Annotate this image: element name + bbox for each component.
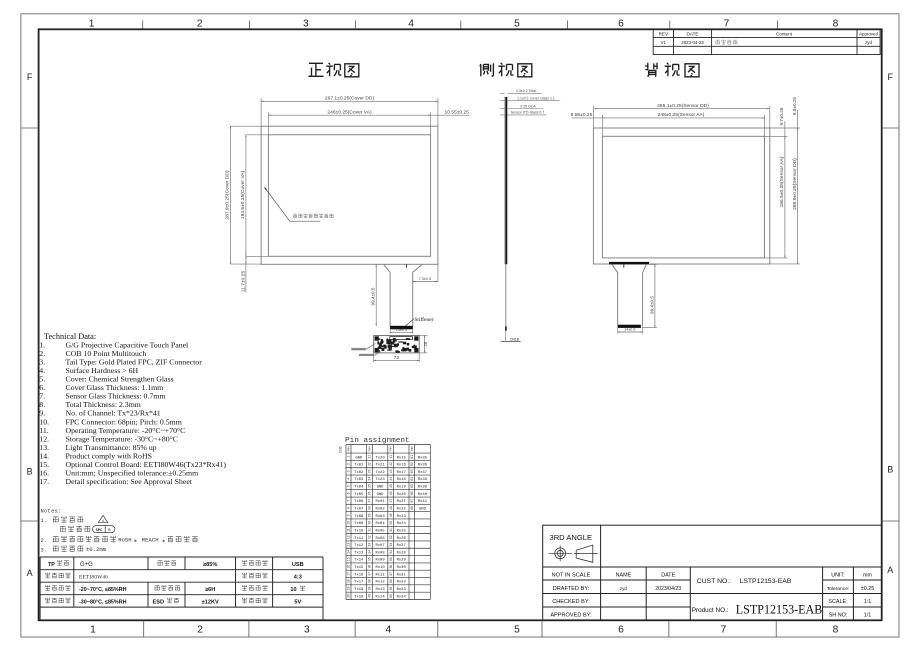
svg-text:4: 4 [347,478,351,480]
svg-text:Tx03: Tx03 [354,478,364,482]
svg-text:3: 3 [304,625,310,636]
svg-text:Pin assignment: Pin assignment [345,437,410,445]
svg-text:RoSH: RoSH [118,537,131,544]
svg-text:A: A [27,568,33,578]
svg-text:NOT IN SCALE: NOT IN SCALE [552,572,591,578]
svg-text:32: 32 [368,535,372,539]
svg-text:1: 1 [89,19,95,30]
svg-text:68: 68 [410,506,414,510]
svg-text:7: 7 [724,19,730,30]
svg-text:23: 23 [368,469,372,473]
svg-text:Rx32: Rx32 [397,581,407,585]
svg-text:PIN: PIN [389,446,393,451]
svg-text:-30~80°C, ≤85%RH: -30~80°C, ≤85%RH [79,600,127,606]
svg-text:61: 61 [410,455,414,459]
svg-text:Tx04: Tx04 [354,486,364,490]
svg-text:SCALE:: SCALE: [828,599,847,605]
svg-text:Rx01: Rx01 [375,500,385,504]
svg-text:8: 8 [347,507,351,509]
svg-text:Stiffener: Stiffener [414,316,434,323]
svg-text:Rx17: Rx17 [397,471,406,475]
svg-text:54: 54 [389,550,393,554]
svg-text:5V: 5V [294,599,301,605]
svg-text:45: 45 [389,484,393,488]
svg-text:LSTP12153-EAB: LSTP12153-EAB [740,578,792,585]
svg-text:26: 26 [368,491,372,495]
svg-text:7: 7 [347,500,351,502]
svg-text:Tx09: Tx09 [354,522,364,526]
svg-text:≥6H: ≥6H [205,587,215,593]
svg-text:31: 31 [368,528,372,532]
svg-text:Rx21: Rx21 [397,500,407,504]
svg-text:36: 36 [368,565,372,569]
svg-text:Tx22: Tx22 [375,471,385,475]
svg-text:GND: GND [355,456,363,460]
svg-text:GND: GND [377,493,385,497]
svg-text:F: F [888,72,894,82]
svg-text:Tx10: Tx10 [354,529,364,533]
svg-text:Tx06: Tx06 [354,500,364,504]
svg-text:11: 11 [347,528,351,532]
svg-text:14: 14 [347,550,351,554]
svg-text:3.: 3. [41,547,47,553]
svg-text:184.5±0.25(Cover VA): 184.5±0.25(Cover VA) [240,170,246,219]
svg-text:Tx19: Tx19 [354,595,364,599]
svg-text:V1: V1 [661,40,667,45]
svg-text:5: 5 [514,625,520,636]
svg-text:1:1: 1:1 [864,599,872,605]
svg-text:18: 18 [347,579,351,583]
svg-text:14±0.5: 14±0.5 [396,328,407,332]
svg-text:B: B [887,465,893,475]
svg-text:zyd: zyd [620,586,628,591]
svg-text:Rx07: Rx07 [375,544,384,548]
svg-text:Rx39: Rx39 [418,486,428,490]
svg-text:47: 47 [389,499,393,503]
svg-text:9.7±0.25: 9.7±0.25 [779,107,784,125]
svg-text:GND: GND [377,486,385,490]
svg-text:PIN: PIN [347,446,351,451]
svg-text:19: 19 [347,587,351,591]
svg-text:Tx23: Tx23 [375,478,385,482]
svg-text:±12KV: ±12KV [202,599,219,605]
svg-text:Rx09: Rx09 [375,559,385,563]
svg-text:Tx02: Tx02 [354,471,364,475]
svg-text:Rx04: Rx04 [375,522,385,526]
svg-text:60: 60 [389,594,393,598]
svg-text:52: 52 [389,535,393,539]
svg-text:Tx12: Tx12 [354,544,364,548]
svg-text:59: 59 [389,587,393,591]
svg-text:49: 49 [389,513,393,517]
svg-text:Rx19: Rx19 [397,486,407,490]
svg-text:9: 9 [347,514,351,516]
svg-text:1: 1 [90,625,96,636]
svg-text:Rx34: Rx34 [397,595,407,599]
svg-text:33: 33 [368,543,372,547]
svg-text:CN1: CN1 [340,445,344,453]
svg-text:REACH: REACH [142,537,159,544]
svg-text:Content: Content [776,32,793,37]
svg-text:PIN: PIN [410,446,414,451]
svg-text:20: 20 [347,594,351,598]
svg-text:Approved: Approved [859,32,878,37]
svg-text:Rx14: Rx14 [375,595,385,599]
svg-text:Rx05: Rx05 [375,529,385,533]
svg-text:62: 62 [410,462,414,466]
svg-text:CUST NO.:: CUST NO.: [697,578,731,585]
svg-text:NAME: NAME [616,572,632,578]
svg-text:41: 41 [389,455,393,459]
svg-text:±0.25: ±0.25 [861,586,874,592]
svg-text:Sensor ITO Glass 0.7: Sensor ITO Glass 0.7 [511,111,545,115]
svg-text:35: 35 [368,557,372,561]
svg-text:265.1±0.25(Sensor DD): 265.1±0.25(Sensor DD) [657,103,709,109]
svg-text:Rx40: Rx40 [418,493,428,497]
svg-text:34: 34 [368,550,372,554]
svg-text:Rx36: Rx36 [418,464,428,468]
svg-text:6: 6 [618,625,624,636]
svg-text:Tx21: Tx21 [375,464,385,468]
svg-text:DATE: DATE [661,572,675,578]
svg-text:CN1B: CN1B [510,338,520,342]
svg-text:46: 46 [389,491,393,495]
svg-text:17: 17 [347,572,351,576]
svg-text:Rx26: Rx26 [397,537,407,541]
svg-text:10: 10 [347,521,351,525]
svg-text:44: 44 [389,477,393,481]
svg-text:Rx13: Rx13 [375,588,385,592]
svg-text:Rx35: Rx35 [418,456,428,460]
svg-text:G+G: G+G [80,562,93,568]
svg-text:99.4±0.5: 99.4±0.5 [371,287,376,305]
svg-text:Rx28: Rx28 [397,551,407,555]
svg-text:10: 10 [290,587,296,593]
svg-text:2.3±0.2 Total: 2.3±0.2 Total [516,89,536,93]
svg-text:63: 63 [410,469,414,473]
svg-text:1: 1 [347,456,351,458]
svg-text:53: 53 [389,543,393,547]
svg-text:2.: 2. [41,538,47,544]
svg-text:29: 29 [368,513,372,517]
svg-text:67: 67 [410,499,414,503]
svg-text:Rx12: Rx12 [375,581,385,585]
svg-text:6: 6 [347,492,351,494]
svg-text:Rx23: Rx23 [397,515,407,519]
svg-text:4: 4 [385,625,391,636]
svg-text:43: 43 [389,469,393,473]
svg-text:2: 2 [197,625,203,636]
svg-text:1.1±0.1 Cover Glass 1.1: 1.1±0.1 Cover Glass 1.1 [517,97,555,101]
svg-text:Rx27: Rx27 [397,544,406,548]
svg-text:REV: REV [659,32,669,37]
svg-text:Rx06: Rx06 [375,537,385,541]
svg-text:SPC: SPC [96,528,103,532]
svg-text:24: 24 [368,477,372,481]
svg-text:±0.2mm: ±0.2mm [86,546,107,553]
svg-text:16: 16 [347,565,351,569]
svg-text:Rx16: Rx16 [397,464,407,468]
svg-text:14±0.5: 14±0.5 [624,328,635,332]
svg-text:246±0.25(Cover VA): 246±0.25(Cover VA) [327,109,372,115]
svg-text:Rx03: Rx03 [375,515,385,519]
svg-text:287.9±0.25(Cover DD): 287.9±0.25(Cover DD) [225,170,231,220]
svg-text:Tx07: Tx07 [354,508,363,512]
svg-text:Product NO.:: Product NO.: [692,607,729,614]
svg-text:Rx29: Rx29 [397,559,407,563]
svg-text:27: 27 [368,499,372,503]
svg-text:Rx37: Rx37 [418,471,427,475]
svg-text:22: 22 [368,462,372,466]
svg-text:Tx05: Tx05 [354,493,364,497]
svg-text:15: 15 [347,557,351,561]
svg-text:50: 50 [389,521,393,525]
svg-text:4:3: 4:3 [294,574,302,580]
svg-text:248±0.25(Sensor AA): 248±0.25(Sensor AA) [658,112,705,118]
svg-text:Tx15: Tx15 [354,566,364,570]
svg-text:PIN: PIN [368,446,372,451]
svg-text:GND: GND [419,508,427,512]
svg-text:USB: USB [292,562,304,568]
svg-text:267.1±0.25(Cover DD): 267.1±0.25(Cover DD) [325,96,375,102]
svg-text:Rx30: Rx30 [397,566,407,570]
svg-text:17.: 17. [39,477,49,486]
svg-text:≥85%: ≥85% [203,562,217,568]
svg-text:6: 6 [618,19,624,30]
svg-text:5: 5 [347,485,351,487]
svg-text:Tx16: Tx16 [354,573,364,577]
svg-text:25: 25 [368,484,372,488]
svg-text:Tx18: Tx18 [354,588,364,592]
svg-text:Rx08: Rx08 [375,551,385,555]
svg-text:Rx24: Rx24 [397,522,407,526]
svg-text:8: 8 [833,19,839,30]
svg-text:58: 58 [389,579,393,583]
svg-text:UNIT:: UNIT: [831,572,844,578]
svg-text:-20~70°C, ≤85%RH: -20~70°C, ≤85%RH [79,587,127,593]
svg-text:66: 66 [410,491,414,495]
svg-text:Rx25: Rx25 [397,529,407,533]
svg-text:3: 3 [347,470,351,472]
svg-text:7: 7 [721,625,727,636]
svg-text:11.7±0.25: 11.7±0.25 [240,271,246,293]
svg-text:Rx33: Rx33 [397,588,407,592]
svg-text:Rx02: Rx02 [375,508,385,512]
svg-text:186.5±0.25(Sensor AA): 186.5±0.25(Sensor AA) [779,156,785,207]
svg-text:4: 4 [408,19,414,30]
svg-text:Rx22: Rx22 [397,508,407,512]
svg-text:13: 13 [347,543,351,547]
svg-text:Tx17: Tx17 [354,581,363,585]
svg-text:40: 40 [368,594,372,598]
svg-text:A: A [887,565,893,575]
svg-text:Rx41: Rx41 [418,500,428,504]
svg-text:EETI80W46: EETI80W46 [79,575,108,581]
svg-text:2: 2 [347,463,351,465]
svg-text:Tx20: Tx20 [375,456,385,460]
svg-text:2023/04/23: 2023/04/23 [655,586,681,592]
svg-text:TP: TP [48,562,55,568]
svg-text:Tolerance:: Tolerance: [827,586,850,592]
svg-text:28: 28 [423,341,428,346]
svg-text:Tx08: Tx08 [354,515,364,519]
svg-text:2: 2 [197,19,203,30]
svg-text:mm: mm [863,572,872,578]
svg-text:1.: 1. [41,518,47,524]
svg-text:F: F [27,72,33,82]
svg-text:39: 39 [368,587,372,591]
svg-text:8: 8 [833,625,839,636]
svg-text:Rx11: Rx11 [375,573,385,577]
svg-text:72: 72 [394,355,400,361]
svg-text:zyd: zyd [865,40,872,45]
svg-text:Tx11: Tx11 [354,537,364,541]
svg-text:28: 28 [368,506,372,510]
svg-text:42: 42 [389,462,393,466]
svg-text:55: 55 [389,557,393,561]
svg-text:2023-04-23: 2023-04-23 [681,40,704,45]
svg-text:30: 30 [368,521,372,525]
svg-text:APPROVED BY:: APPROVED BY: [550,613,592,619]
svg-text:57: 57 [389,572,393,576]
svg-text:1/1: 1/1 [864,613,872,619]
svg-text:B: B [27,467,33,477]
svg-text:Rx18: Rx18 [397,478,407,482]
svg-text:21: 21 [368,455,372,459]
svg-text:285.9±0.25(Sensor DD): 285.9±0.25(Sensor DD) [792,158,798,210]
svg-text:Rx38: Rx38 [418,478,428,482]
svg-text:99.4±0.5: 99.4±0.5 [649,296,654,314]
svg-text:Notes:: Notes: [41,509,62,515]
svg-text:6.8±0.25: 6.8±0.25 [792,97,797,115]
svg-text:48: 48 [389,506,393,510]
svg-text:ESD: ESD [153,599,165,605]
svg-text:37: 37 [368,572,372,576]
svg-text:CHECKED BY:: CHECKED BY: [552,599,590,605]
svg-text:Rx15: Rx15 [397,456,407,460]
svg-text:51: 51 [389,528,393,532]
svg-text:DRAFTED BY:: DRAFTED BY: [553,586,590,592]
svg-text:Tx13: Tx13 [354,551,364,555]
svg-text:38: 38 [368,579,372,583]
svg-text:LSTP12153-EAB: LSTP12153-EAB [736,603,823,617]
svg-text:12: 12 [347,535,351,539]
svg-text:0.25 OCA: 0.25 OCA [520,104,536,108]
svg-text:8.55±0.25: 8.55±0.25 [571,112,593,118]
svg-text:10.55±0.25: 10.55±0.25 [444,109,469,115]
svg-text:Rx31: Rx31 [397,573,407,577]
svg-text:Detail specification: See Appr: Detail specification: See Approval Sheet [66,477,193,486]
svg-text:Tx14: Tx14 [354,559,364,563]
svg-text:56: 56 [389,565,393,569]
svg-text:DATE: DATE [687,32,699,37]
svg-text:Rx20: Rx20 [397,493,407,497]
svg-text:5: 5 [514,19,520,30]
svg-text:3: 3 [303,19,309,30]
svg-text:SH NO:: SH NO: [829,613,848,619]
svg-text:65: 65 [410,484,414,488]
svg-text:3RD ANGLE: 3RD ANGLE [549,533,592,542]
svg-text:64: 64 [410,477,414,481]
svg-text:Tx01: Tx01 [354,464,364,468]
svg-text:7.3±0.3: 7.3±0.3 [419,277,431,281]
svg-text:Rx10: Rx10 [375,566,385,570]
